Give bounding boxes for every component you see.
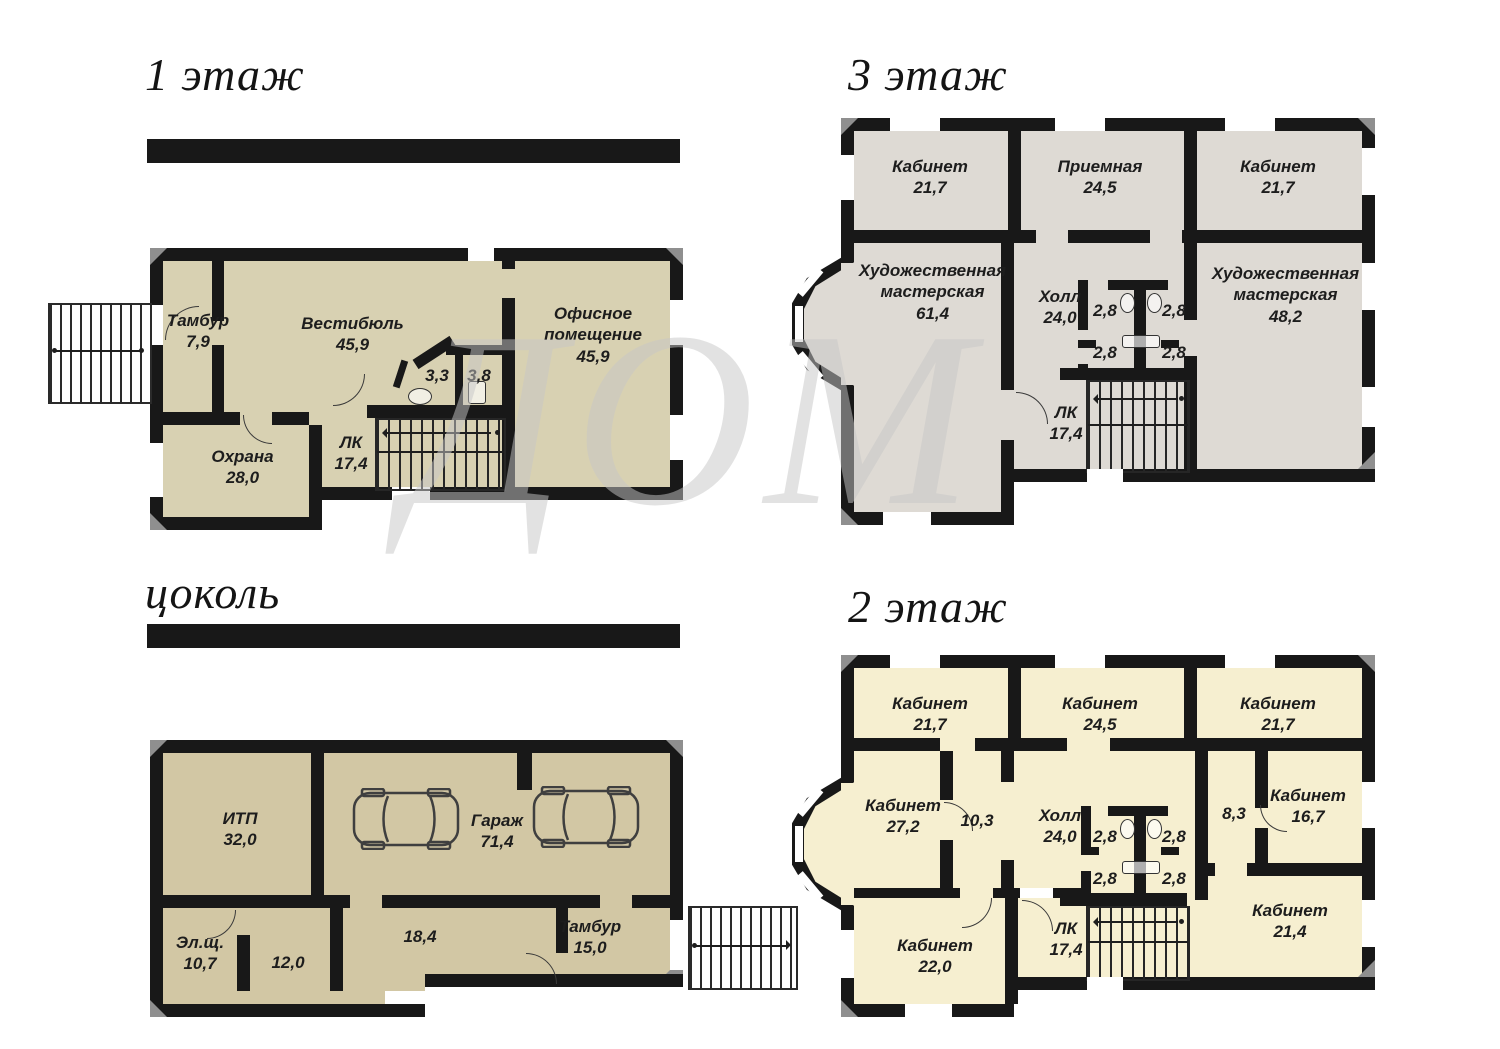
room-name: Холл bbox=[1039, 806, 1081, 825]
room-label-art-studio: Художественная мастерская48,2 bbox=[1203, 263, 1368, 327]
room-area: 10,7 bbox=[183, 954, 216, 973]
room-area: 16,7 bbox=[1291, 807, 1324, 826]
exterior-stairs bbox=[48, 303, 152, 404]
basement-plan: ИТП32,0 Гараж71,4 Эл.щ.10,7 12,0 18,4 Та… bbox=[150, 740, 683, 1017]
wall bbox=[1005, 898, 1018, 1004]
floor1-plan: Тамбур7,9 Вестибюль45,9 3,3 3,8 Офисное … bbox=[150, 248, 683, 530]
room-name: Кабинет bbox=[1240, 694, 1316, 713]
room-label-corridor: 10,3 bbox=[952, 810, 1002, 831]
wall bbox=[1208, 863, 1215, 876]
room-area: 48,2 bbox=[1269, 307, 1302, 326]
room-label-wc: 2,8 bbox=[1158, 342, 1190, 363]
wall bbox=[1255, 828, 1268, 863]
wall bbox=[854, 888, 960, 898]
room-area: 12,0 bbox=[271, 953, 304, 972]
wall bbox=[940, 840, 953, 888]
room-area: 24,5 bbox=[1083, 178, 1116, 197]
room-area: 18,4 bbox=[403, 927, 436, 946]
window bbox=[1362, 782, 1375, 828]
wall bbox=[1001, 751, 1014, 782]
room-name: Кабинет bbox=[1270, 786, 1346, 805]
room-area: 2,8 bbox=[1093, 343, 1117, 362]
outside-area bbox=[322, 500, 683, 530]
room-label-18: 18,4 bbox=[390, 926, 450, 947]
room-area: 45,9 bbox=[336, 335, 369, 354]
room-label-tambur: Тамбур15,0 bbox=[535, 916, 645, 959]
room-area: 10,3 bbox=[960, 811, 993, 830]
wall bbox=[1184, 131, 1197, 230]
room-area: 21,7 bbox=[913, 715, 946, 734]
wall bbox=[854, 738, 940, 751]
door-opening bbox=[670, 920, 683, 970]
wall bbox=[1247, 863, 1362, 876]
wall bbox=[163, 895, 350, 908]
floor-plans-sheet: 1 этаж 3 этаж цоколь 2 этаж bbox=[0, 0, 1500, 1049]
room-name: ЛК bbox=[1055, 403, 1077, 422]
room-name: Тамбур bbox=[559, 917, 621, 936]
room-area: 17,4 bbox=[334, 454, 367, 473]
sink-icon bbox=[1122, 335, 1160, 348]
window bbox=[841, 930, 854, 978]
room-area: 21,7 bbox=[1261, 178, 1294, 197]
room-label-kabinet: Кабинет24,5 bbox=[1030, 693, 1170, 736]
room-name: Художественная мастерская bbox=[1212, 264, 1359, 304]
basement-title: цоколь bbox=[145, 566, 280, 619]
room-name: ИТП bbox=[223, 809, 258, 828]
room-name: ЛК bbox=[340, 433, 362, 452]
wall bbox=[854, 230, 1036, 243]
window bbox=[1362, 900, 1375, 947]
room-area: 3,3 bbox=[425, 366, 449, 385]
room-label-priemnaya: Приемная24,5 bbox=[1030, 156, 1170, 199]
wall bbox=[1060, 893, 1187, 906]
room-area: 71,4 bbox=[480, 832, 513, 851]
floor2-plan: Кабинет21,7 Кабинет24,5 Кабинет21,7 Каби… bbox=[841, 655, 1375, 1017]
window bbox=[1225, 655, 1275, 668]
window bbox=[890, 655, 940, 668]
staircase bbox=[375, 418, 506, 491]
room-label-art-studio: Художественная мастерская61,4 bbox=[845, 260, 1020, 324]
wall bbox=[632, 895, 670, 908]
room-label-wc: 2,8 bbox=[1158, 826, 1190, 847]
room-label-kabinet: Кабинет21,4 bbox=[1220, 900, 1360, 943]
window bbox=[670, 300, 683, 345]
wall bbox=[272, 412, 309, 425]
section-wall-bar-top bbox=[147, 139, 680, 163]
wall bbox=[1014, 977, 1375, 990]
wall bbox=[1110, 738, 1195, 751]
room-name: Охрана bbox=[211, 447, 273, 466]
window bbox=[385, 991, 433, 1004]
room-name: Тамбур bbox=[167, 311, 229, 330]
room-label-lk: ЛК17,4 bbox=[1037, 402, 1095, 445]
room-name: Кабинет bbox=[892, 157, 968, 176]
room-area: 27,2 bbox=[886, 817, 919, 836]
room-label-kabinet: Кабинет21,7 bbox=[865, 156, 995, 199]
room-area: 22,0 bbox=[918, 957, 951, 976]
room-label-hall: Холл24,0 bbox=[1025, 805, 1095, 848]
room-area: 3,8 bbox=[467, 366, 491, 385]
room-area: 61,4 bbox=[916, 304, 949, 323]
room-name: Кабинет bbox=[897, 936, 973, 955]
room-name: Кабинет bbox=[1240, 157, 1316, 176]
room-area: 2,8 bbox=[1093, 301, 1117, 320]
room-label-wc: 2,8 bbox=[1158, 300, 1190, 321]
wall bbox=[163, 412, 240, 425]
window bbox=[150, 443, 163, 497]
room-area: 32,0 bbox=[223, 830, 256, 849]
window bbox=[890, 118, 940, 131]
wall bbox=[1014, 469, 1375, 482]
wall bbox=[1182, 230, 1362, 243]
room-area: 2,8 bbox=[1162, 869, 1186, 888]
room-label-corridor: 8,3 bbox=[1212, 803, 1256, 824]
window bbox=[1087, 977, 1123, 990]
window bbox=[670, 415, 683, 460]
wall bbox=[1208, 738, 1362, 751]
room-label-vestibule: Вестибюль45,9 bbox=[285, 313, 420, 356]
door-opening bbox=[1020, 888, 1053, 898]
room-area: 24,0 bbox=[1043, 308, 1076, 327]
room-label-wc: 2,8 bbox=[1089, 868, 1121, 889]
room-name: Приемная bbox=[1058, 157, 1143, 176]
room-area: 8,3 bbox=[1222, 804, 1246, 823]
room-label-kabinet: Кабинет21,7 bbox=[1208, 693, 1348, 736]
exterior-stairs bbox=[688, 906, 798, 990]
room-label-lk: ЛК17,4 bbox=[1037, 918, 1095, 961]
wall bbox=[212, 345, 224, 412]
room-label-kabinet: Кабинет27,2 bbox=[843, 795, 963, 838]
room-area: 2,8 bbox=[1162, 343, 1186, 362]
room-label-kabinet: Кабинет16,7 bbox=[1258, 785, 1358, 828]
room-name: Кабинет bbox=[892, 694, 968, 713]
floor3-plan: Кабинет21,7 Приемная24,5 Кабинет21,7 Худ… bbox=[841, 118, 1375, 525]
room-area: 7,9 bbox=[186, 332, 210, 351]
window bbox=[468, 248, 494, 261]
room-name: ЛК bbox=[1055, 919, 1077, 938]
room-name: Художественная мастерская bbox=[859, 261, 1006, 301]
room-name: Холл bbox=[1039, 287, 1081, 306]
staircase bbox=[1086, 380, 1190, 473]
wall bbox=[502, 261, 515, 269]
wall bbox=[1134, 280, 1146, 368]
room-label-kabinet: Кабинет21,7 bbox=[865, 693, 995, 736]
wall bbox=[1001, 440, 1014, 512]
section-wall-bar-bottom bbox=[147, 624, 680, 648]
floor3-title: 3 этаж bbox=[848, 48, 1008, 101]
room-area: 24,5 bbox=[1083, 715, 1116, 734]
wall bbox=[311, 753, 324, 895]
room-label-tambur: Тамбур7,9 bbox=[158, 310, 238, 353]
room-label-security: Охрана28,0 bbox=[175, 446, 310, 489]
window bbox=[1055, 655, 1105, 668]
window bbox=[1087, 469, 1123, 482]
room-label-wc: 2,8 bbox=[1089, 826, 1121, 847]
wall bbox=[975, 738, 1067, 751]
room-label-itp: ИТП32,0 bbox=[175, 808, 305, 851]
room-area: 21,7 bbox=[1261, 715, 1294, 734]
wall bbox=[1134, 806, 1146, 893]
room-label-garage: Гараж71,4 bbox=[432, 810, 562, 853]
wall bbox=[940, 751, 953, 800]
toilet-icon bbox=[1120, 819, 1135, 839]
wall bbox=[1008, 131, 1021, 230]
wall bbox=[1001, 860, 1014, 888]
room-name: Гараж bbox=[471, 811, 523, 830]
window bbox=[841, 155, 854, 200]
room-label-wc: 2,8 bbox=[1089, 342, 1121, 363]
wall bbox=[1081, 847, 1099, 855]
window bbox=[1055, 118, 1105, 131]
wall bbox=[1008, 668, 1021, 738]
wall bbox=[1068, 230, 1150, 243]
room-area: 17,4 bbox=[1049, 940, 1082, 959]
room-area: 2,8 bbox=[1093, 869, 1117, 888]
room-label-wc: 2,8 bbox=[1089, 300, 1121, 321]
toilet-icon bbox=[1120, 293, 1135, 313]
outside-area bbox=[1014, 482, 1375, 525]
wall bbox=[517, 753, 532, 790]
room-label-12: 12,0 bbox=[258, 952, 318, 973]
wall bbox=[446, 345, 502, 355]
room-label-kabinet: Кабинет21,7 bbox=[1208, 156, 1348, 199]
wall bbox=[1060, 368, 1190, 380]
room-area: 28,0 bbox=[226, 468, 259, 487]
room-label-elsch: Эл.щ.10,7 bbox=[158, 932, 242, 975]
floor2-title: 2 этаж bbox=[848, 580, 1008, 633]
room-area: 2,8 bbox=[1162, 827, 1186, 846]
room-area: 2,8 bbox=[1162, 301, 1186, 320]
wall bbox=[1184, 668, 1197, 738]
window bbox=[905, 1004, 952, 1017]
room-label-wc1: 3,3 bbox=[420, 365, 454, 386]
room-label-lk: ЛК17,4 bbox=[322, 432, 380, 475]
room-name: Офисное помещение bbox=[544, 304, 642, 344]
room-name: Кабинет bbox=[1252, 901, 1328, 920]
room-area: 21,7 bbox=[913, 178, 946, 197]
room-area: 24,0 bbox=[1043, 827, 1076, 846]
room-label-hall: Холл24,0 bbox=[1025, 286, 1095, 329]
room-label-office: Офисное помещение45,9 bbox=[520, 303, 666, 367]
room-area: 21,4 bbox=[1273, 922, 1306, 941]
room-label-wc2: 3,8 bbox=[462, 365, 496, 386]
wall bbox=[1195, 738, 1208, 900]
room-name: Кабинет bbox=[865, 796, 941, 815]
wall bbox=[993, 888, 1014, 898]
room-name: Кабинет bbox=[1062, 694, 1138, 713]
room-name: Вестибюль bbox=[301, 314, 404, 333]
outside-area bbox=[1014, 990, 1375, 1017]
window bbox=[1225, 118, 1275, 131]
wall bbox=[382, 895, 600, 908]
wall bbox=[309, 425, 322, 517]
room-label-wc: 2,8 bbox=[1158, 868, 1190, 889]
outside-area bbox=[425, 987, 683, 1017]
wall bbox=[330, 908, 343, 991]
wall bbox=[1161, 847, 1179, 855]
room-area: 17,4 bbox=[1049, 424, 1082, 443]
room-name: Эл.щ. bbox=[176, 933, 224, 952]
wall bbox=[367, 405, 502, 418]
sink-icon bbox=[1122, 861, 1160, 874]
floor1-title: 1 этаж bbox=[145, 48, 305, 101]
staircase bbox=[1086, 906, 1190, 981]
room-area: 45,9 bbox=[576, 347, 609, 366]
room-area: 15,0 bbox=[573, 938, 606, 957]
room-label-kabinet: Кабинет22,0 bbox=[870, 935, 1000, 978]
toilet-icon bbox=[408, 388, 432, 405]
window bbox=[883, 512, 931, 525]
window bbox=[1362, 148, 1375, 195]
window bbox=[1362, 387, 1375, 427]
room-area: 2,8 bbox=[1093, 827, 1117, 846]
